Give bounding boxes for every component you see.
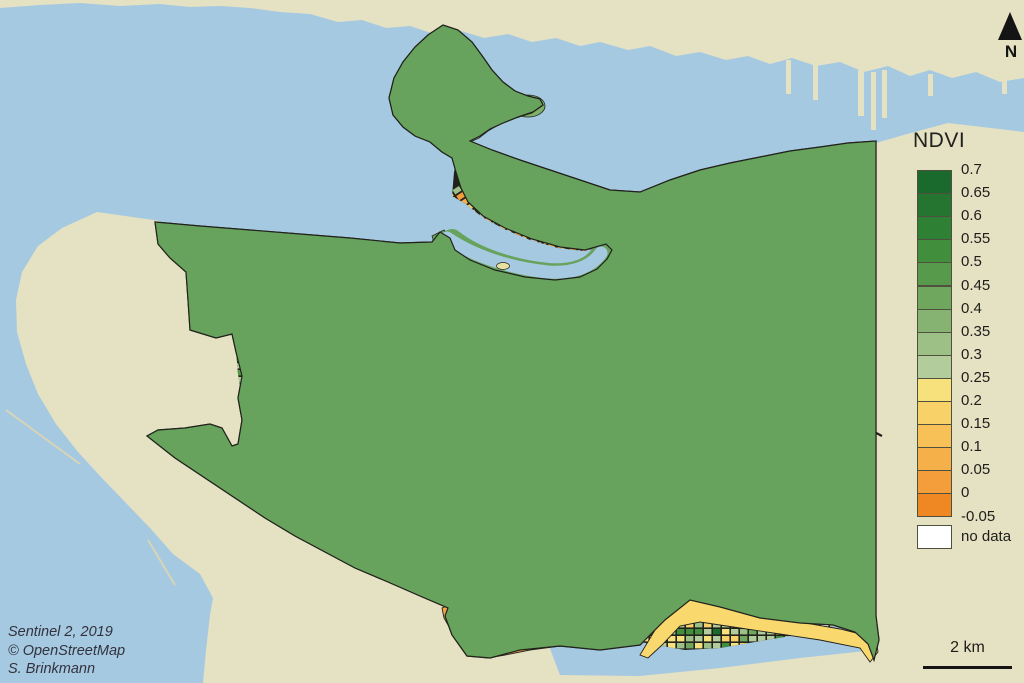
legend-swatch bbox=[917, 170, 952, 194]
legend-tick-label: -0.05 bbox=[961, 508, 995, 526]
legend-swatch bbox=[917, 332, 952, 356]
legend-tick-label: 0 bbox=[961, 484, 969, 502]
legend-tick-label: 0.35 bbox=[961, 323, 990, 341]
legend-swatch bbox=[917, 355, 952, 379]
granville-island bbox=[497, 263, 510, 270]
legend-no-data-swatch bbox=[917, 525, 952, 549]
legend-tick-label: 0.15 bbox=[961, 415, 990, 433]
legend-swatch bbox=[917, 424, 952, 448]
legend-swatch bbox=[917, 493, 952, 517]
legend-no-data-label: no data bbox=[961, 528, 1011, 546]
legend-tick-label: 0.1 bbox=[961, 438, 982, 456]
legend-tick-label: 0.2 bbox=[961, 392, 982, 410]
map-figure: NDVI 0.70.650.60.550.50.450.40.350.30.25… bbox=[0, 0, 1024, 683]
legend-tick-label: 0.25 bbox=[961, 369, 990, 387]
legend-swatch bbox=[917, 262, 952, 286]
legend-swatch bbox=[917, 193, 952, 217]
legend-tick-label: 0.3 bbox=[961, 346, 982, 364]
legend-swatch bbox=[917, 239, 952, 263]
map-canvas bbox=[0, 0, 1024, 683]
legend-tick-label: 0.05 bbox=[961, 461, 990, 479]
legend-swatch bbox=[917, 309, 952, 333]
legend-tick-label: 0.7 bbox=[961, 161, 982, 179]
legend-tick-label: 0.6 bbox=[961, 207, 982, 225]
legend-tick-label: 0.4 bbox=[961, 300, 982, 318]
legend-tick-label: 0.65 bbox=[961, 184, 990, 202]
legend-tick-label: 0.45 bbox=[961, 277, 990, 295]
legend-swatch bbox=[917, 401, 952, 425]
legend-swatch bbox=[917, 286, 952, 310]
legend-tick-label: 0.5 bbox=[961, 253, 982, 271]
legend-swatch bbox=[917, 216, 952, 240]
legend-swatch bbox=[917, 447, 952, 471]
legend-swatch bbox=[917, 470, 952, 494]
legend-tick-label: 0.55 bbox=[961, 230, 990, 248]
legend-swatch bbox=[917, 378, 952, 402]
